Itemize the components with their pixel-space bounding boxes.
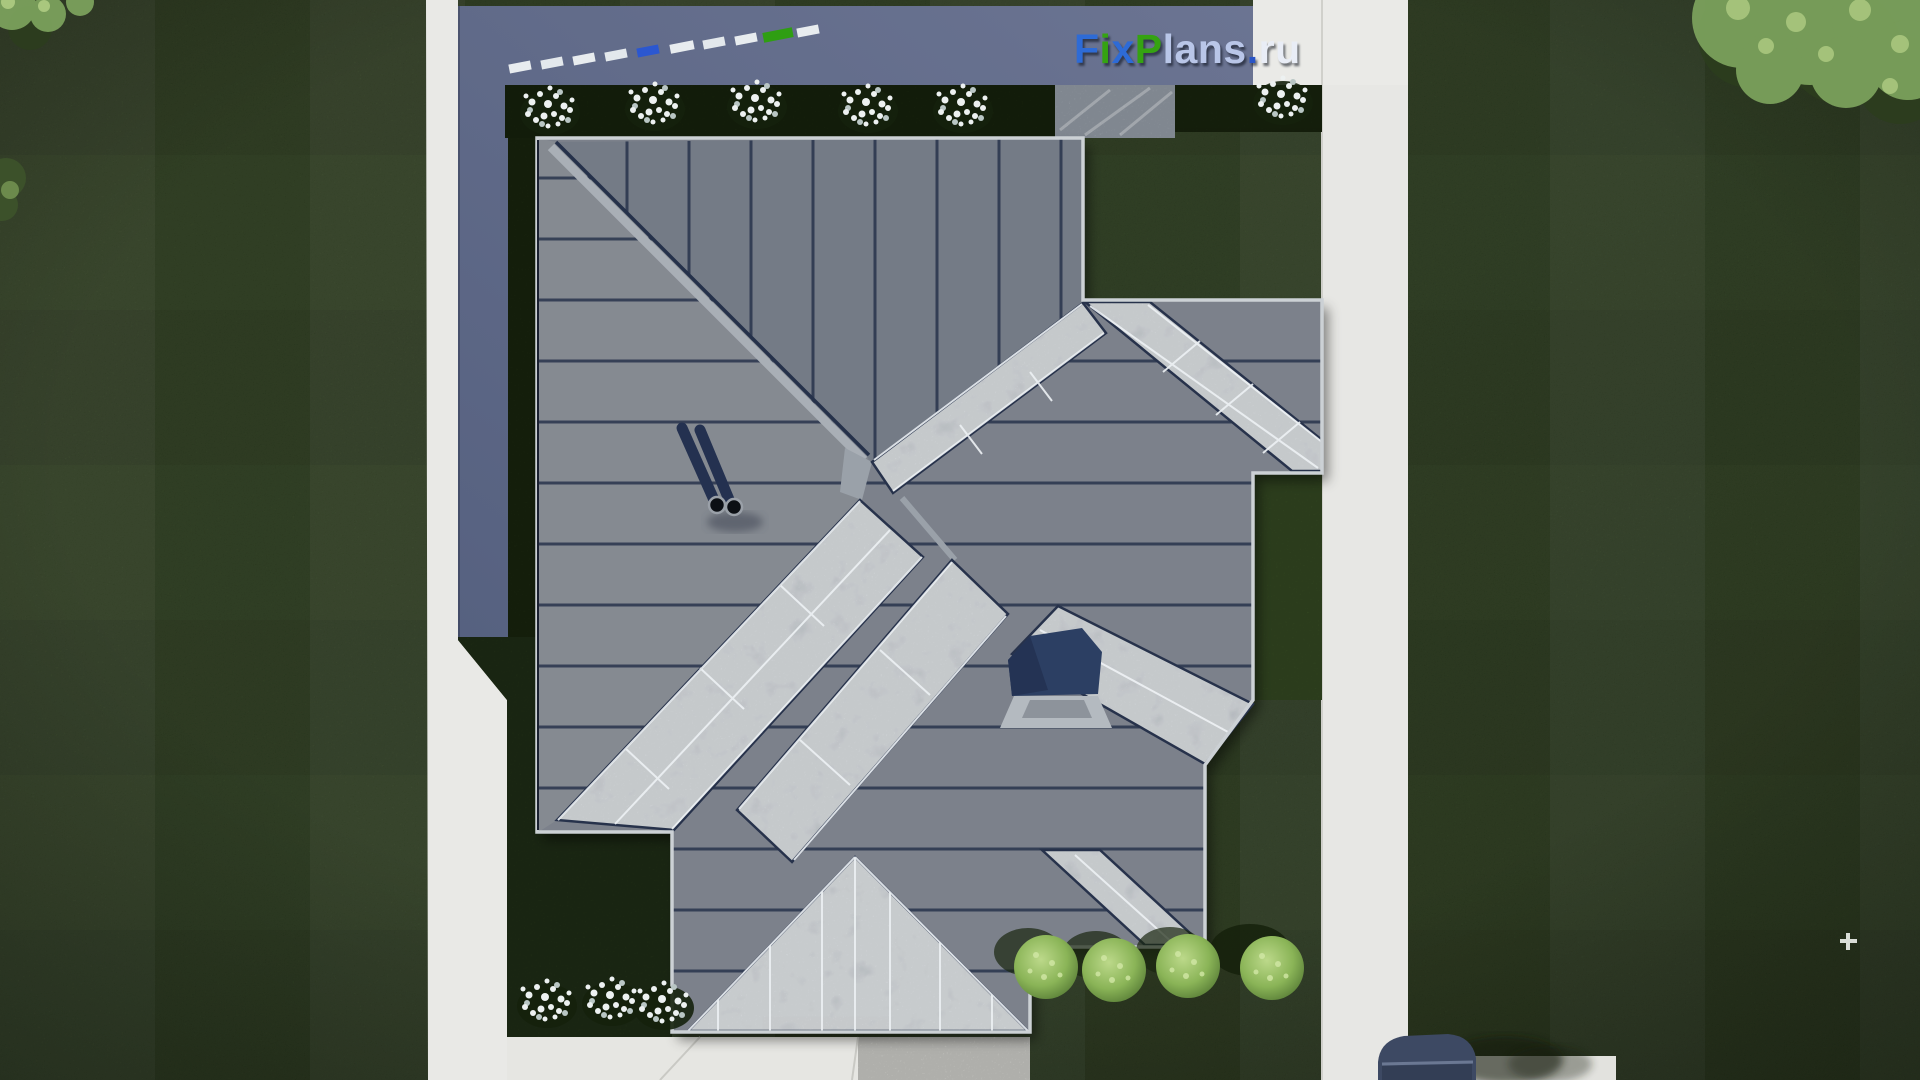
logo-letter: u — [1275, 26, 1301, 72]
fixplans-watermark: FixPlans.ru — [1074, 26, 1301, 73]
logo-letter: a — [1175, 26, 1198, 72]
logo-letter: P — [1135, 26, 1163, 72]
logo-letter: . — [1247, 26, 1259, 72]
marble-pad — [1055, 85, 1175, 138]
right-path — [1322, 0, 1408, 1080]
logo-letter: s — [1223, 26, 1246, 72]
logo-letter: F — [1074, 26, 1100, 72]
scene — [0, 0, 1920, 1080]
logo-letter: r — [1259, 26, 1275, 72]
logo-letter: n — [1198, 26, 1224, 72]
logo-letter: x — [1111, 26, 1134, 72]
logo-letter: l — [1163, 26, 1175, 72]
render-canvas: FixPlans.ru — [0, 0, 1920, 1080]
logo-letter: i — [1100, 26, 1112, 72]
